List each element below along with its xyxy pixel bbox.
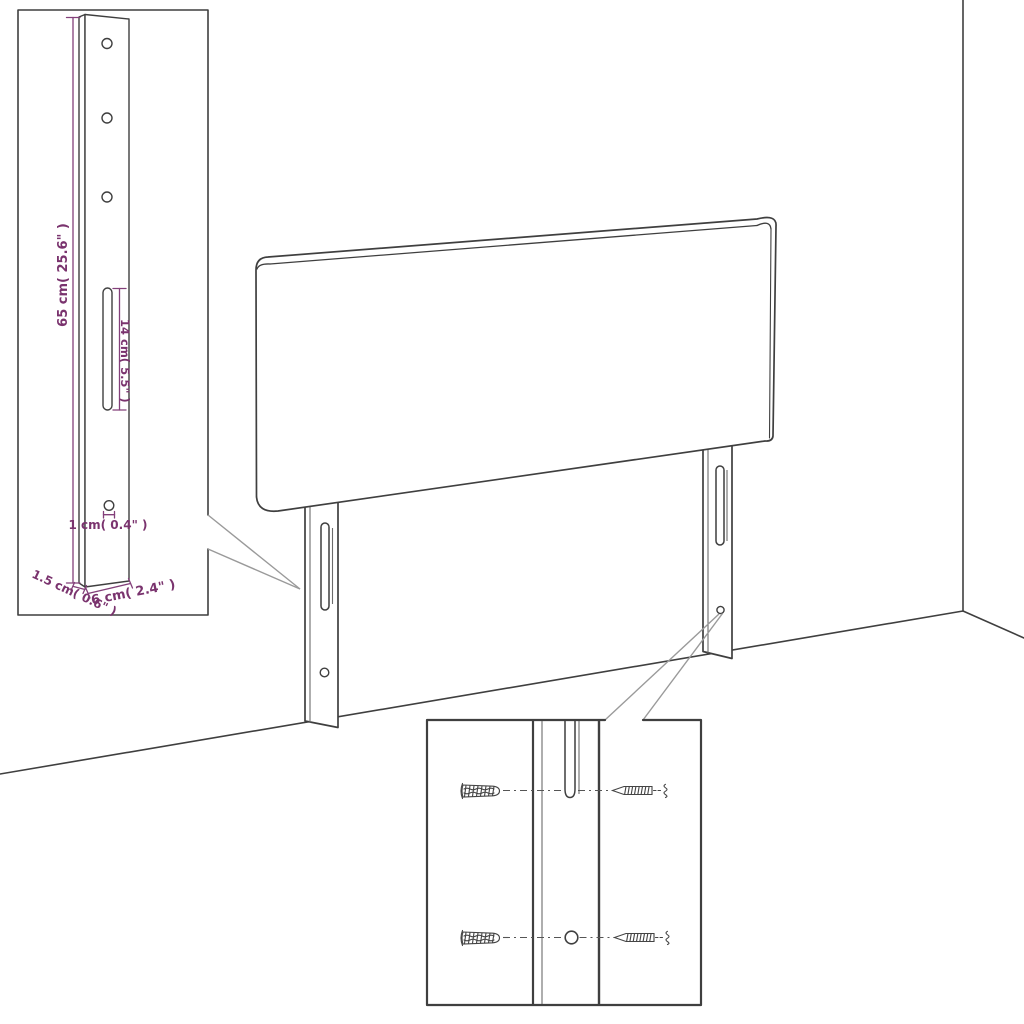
floor-line-left <box>0 611 963 774</box>
bracket-side-face <box>79 15 85 588</box>
bracket-side-view <box>79 15 129 588</box>
screw-upper <box>613 784 668 797</box>
dimension-label-height: 65 cm( 25.6" ) <box>56 223 71 327</box>
leg-closeup-strip <box>533 721 599 1004</box>
panel-outline <box>256 218 776 512</box>
hardware-inset-box <box>427 720 701 1005</box>
strip-slot <box>565 721 575 798</box>
callout-line <box>605 614 719 720</box>
anchor-hole <box>565 931 578 944</box>
callout-line <box>643 614 723 721</box>
hardware-inset <box>427 720 701 1005</box>
dimension-label-slot: 14 cm( 5.5" ) <box>118 319 132 403</box>
diagram-canvas: 65 cm( 25.6" ) 14 cm( 5.5" ) 1 cm( 0.4" … <box>0 0 1024 1024</box>
hardware-row-upper <box>461 784 667 799</box>
callout-line <box>208 515 300 589</box>
callout-line <box>208 549 300 589</box>
left-leg <box>305 480 338 728</box>
floor-line-right <box>963 611 1024 638</box>
headboard-diagram: 65 cm( 25.6" ) 14 cm( 5.5" ) 1 cm( 0.4" … <box>0 0 1024 1024</box>
screw-lower <box>615 931 670 944</box>
wall-plug-lower <box>461 931 500 946</box>
wall-plug-upper <box>461 784 500 799</box>
dimension-height: 65 cm( 25.6" ) <box>56 18 80 584</box>
detail-callout-left <box>208 515 300 589</box>
dimension-label-hole: 1 cm( 0.4" ) <box>69 518 148 532</box>
headboard-panel <box>256 218 776 512</box>
